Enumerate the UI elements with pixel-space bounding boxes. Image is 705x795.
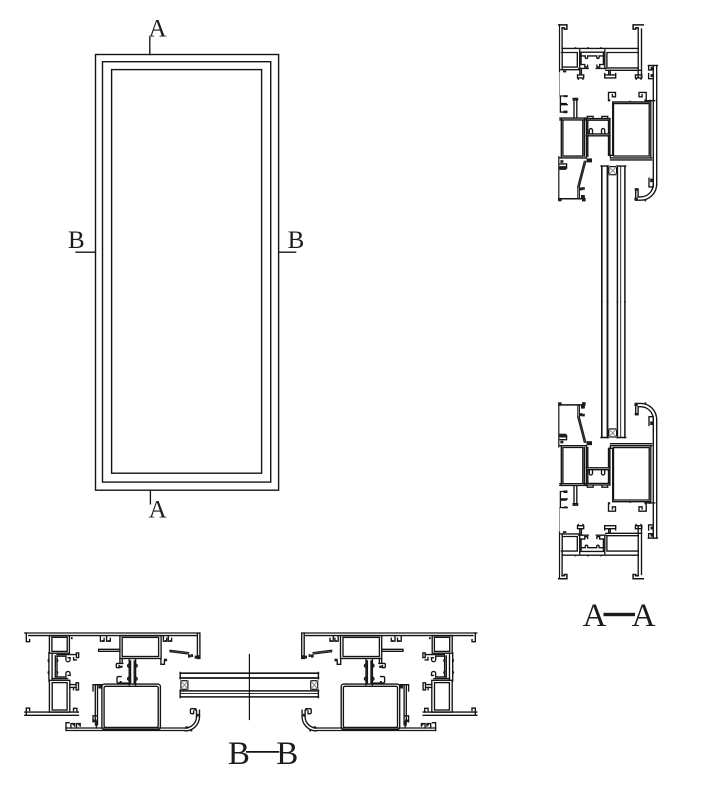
svg-text:A: A <box>149 497 167 524</box>
svg-text:B: B <box>288 227 305 254</box>
svg-text:A: A <box>148 16 166 43</box>
svg-text:A: A <box>632 598 656 634</box>
svg-text:B: B <box>68 227 85 254</box>
svg-text:B: B <box>276 736 298 772</box>
svg-text:B: B <box>228 736 250 772</box>
svg-text:A: A <box>583 598 607 634</box>
